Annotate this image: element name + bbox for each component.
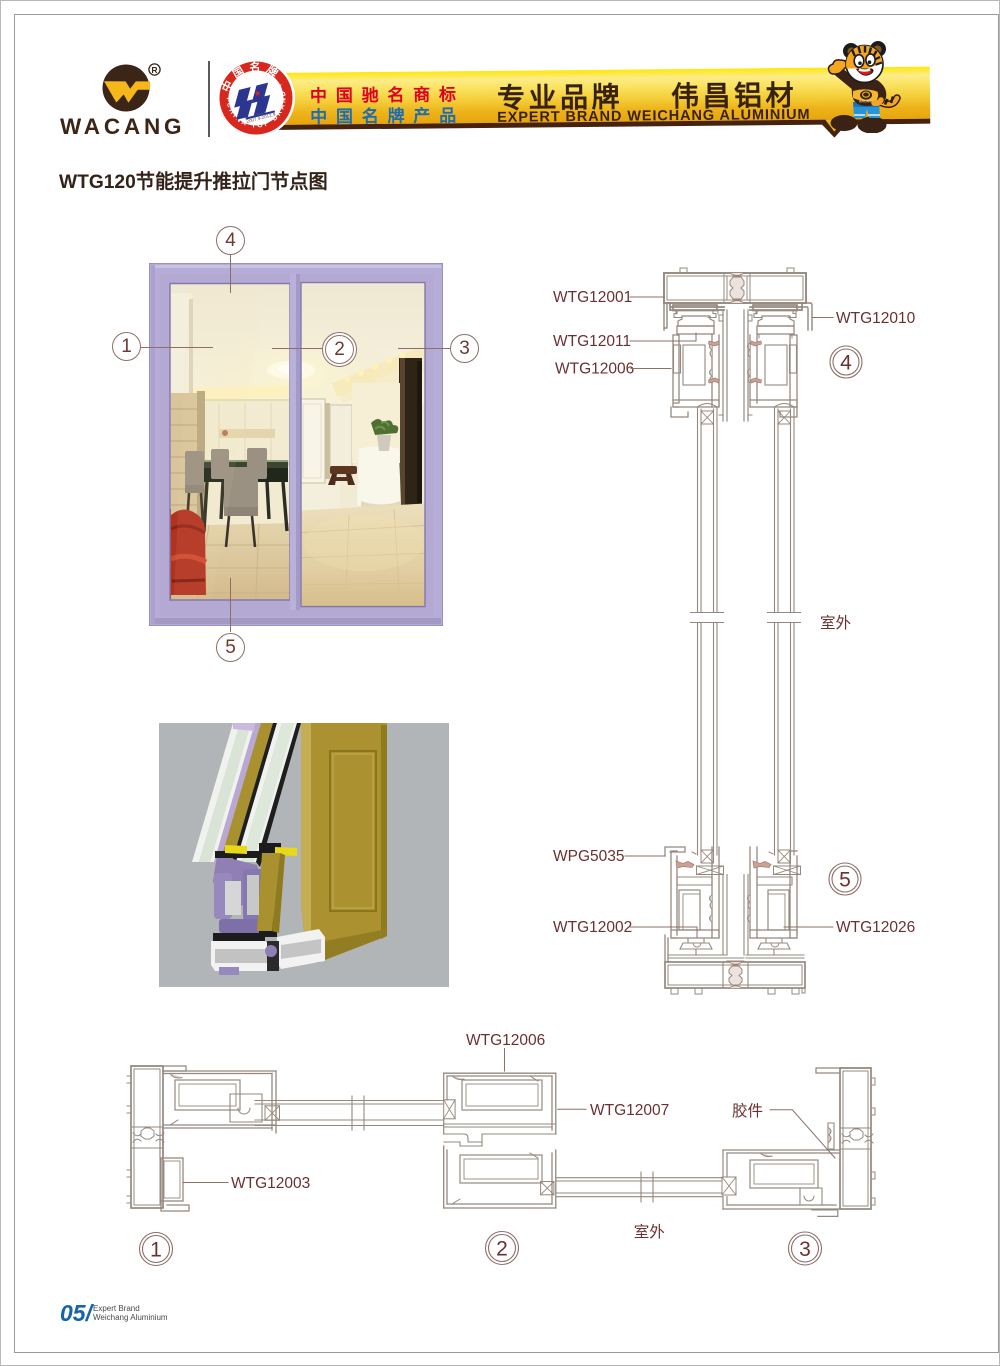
svg-text:2: 2 — [496, 1238, 508, 1261]
svg-text:1: 1 — [150, 1239, 162, 1262]
svg-text:5: 5 — [839, 869, 851, 892]
svg-text:WTG12007: WTG12007 — [590, 1102, 669, 1119]
svg-text:3: 3 — [799, 1238, 811, 1261]
svg-text:胶件: 胶件 — [732, 1102, 763, 1120]
svg-text:室外: 室外 — [634, 1223, 665, 1241]
svg-text:WTG12011: WTG12011 — [553, 333, 631, 350]
svg-text:WTG12003: WTG12003 — [231, 1175, 310, 1192]
svg-text:WTG12006: WTG12006 — [466, 1032, 545, 1049]
svg-text:WPG5035: WPG5035 — [553, 848, 625, 865]
svg-text:WTG12010: WTG12010 — [836, 310, 916, 327]
svg-text:4: 4 — [840, 352, 852, 375]
svg-text:WTG12001: WTG12001 — [553, 289, 632, 306]
svg-text:WTG12002: WTG12002 — [553, 919, 632, 936]
svg-text:室外: 室外 — [820, 614, 851, 632]
svg-text:R: R — [151, 65, 157, 75]
svg-text:WTG12006: WTG12006 — [555, 361, 634, 378]
svg-text:WTG12026: WTG12026 — [836, 919, 915, 936]
